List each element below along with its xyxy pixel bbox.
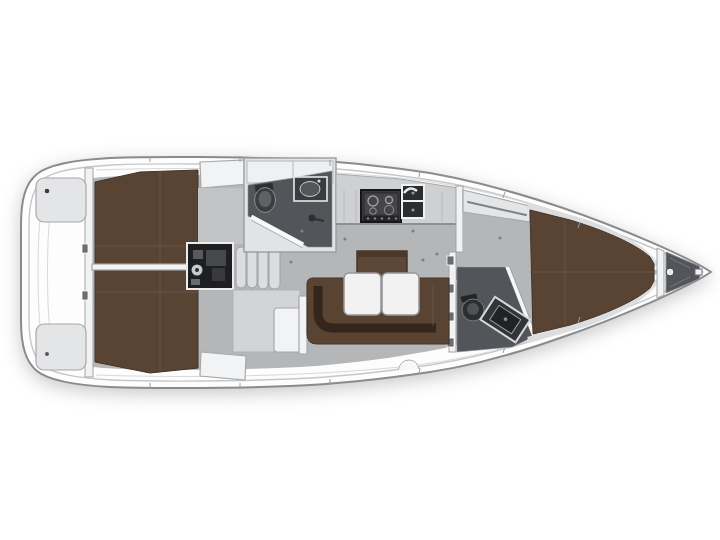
- yacht-floor-plan: [0, 0, 720, 540]
- aft-berth-port: [95, 270, 198, 373]
- floor-plan-canvas: [0, 0, 720, 540]
- faucet-dot: [317, 179, 320, 182]
- berth-divider: [92, 264, 198, 270]
- aft-berth-starboard: [95, 170, 198, 264]
- knob: [381, 217, 383, 219]
- knob: [374, 217, 376, 219]
- toilet-bowl: [259, 191, 272, 207]
- bulkhead-upper: [456, 186, 463, 252]
- sink-drain: [411, 191, 414, 194]
- windlass: [666, 268, 674, 276]
- knob: [388, 217, 390, 219]
- sink-drain: [411, 208, 414, 211]
- floor-dot: [300, 229, 303, 232]
- engine-compartment: [187, 243, 233, 289]
- aft-cabin-locker-bottom: [200, 352, 246, 380]
- floor-dot: [421, 258, 424, 261]
- floor-dot: [498, 236, 501, 239]
- table-leaf-right: [382, 273, 419, 315]
- floor-dot: [289, 260, 292, 263]
- engine-pulley-center: [195, 268, 199, 272]
- stern-fitting-bottom: [45, 352, 49, 356]
- stern-fitting-top: [45, 189, 50, 194]
- aft-cabin-locker-top: [200, 160, 247, 188]
- knob: [395, 217, 397, 219]
- stern-locker-top: [36, 178, 86, 222]
- corridor-panel: [299, 296, 307, 354]
- shower-mixer: [309, 215, 316, 222]
- door-hinge: [447, 256, 454, 265]
- corridor-cabinet-area: [233, 290, 308, 354]
- bulkhead-lower: [449, 252, 456, 352]
- aft-cabin-entry-floor-top: [198, 188, 247, 244]
- bench-backrest: [357, 251, 407, 257]
- floor-dot: [435, 252, 438, 255]
- washbasin-bowl: [300, 182, 320, 197]
- floor-dot: [343, 237, 346, 240]
- step-1: [236, 247, 246, 288]
- stern-locker-bottom: [36, 324, 86, 370]
- engine-part: [191, 279, 200, 285]
- engine-part: [212, 268, 225, 281]
- forestay-fitting: [695, 269, 702, 275]
- knob: [367, 217, 369, 219]
- engine-part: [206, 250, 226, 266]
- engine-part: [193, 250, 203, 259]
- aft-heads: [244, 158, 336, 252]
- transom-hinge-lower: [82, 291, 88, 300]
- transom-hinge-upper: [82, 244, 88, 253]
- toilet-bowl: [467, 303, 479, 315]
- bow-bulkhead: [657, 248, 664, 298]
- table-leaf-left: [344, 273, 381, 315]
- floor-dot: [411, 229, 414, 232]
